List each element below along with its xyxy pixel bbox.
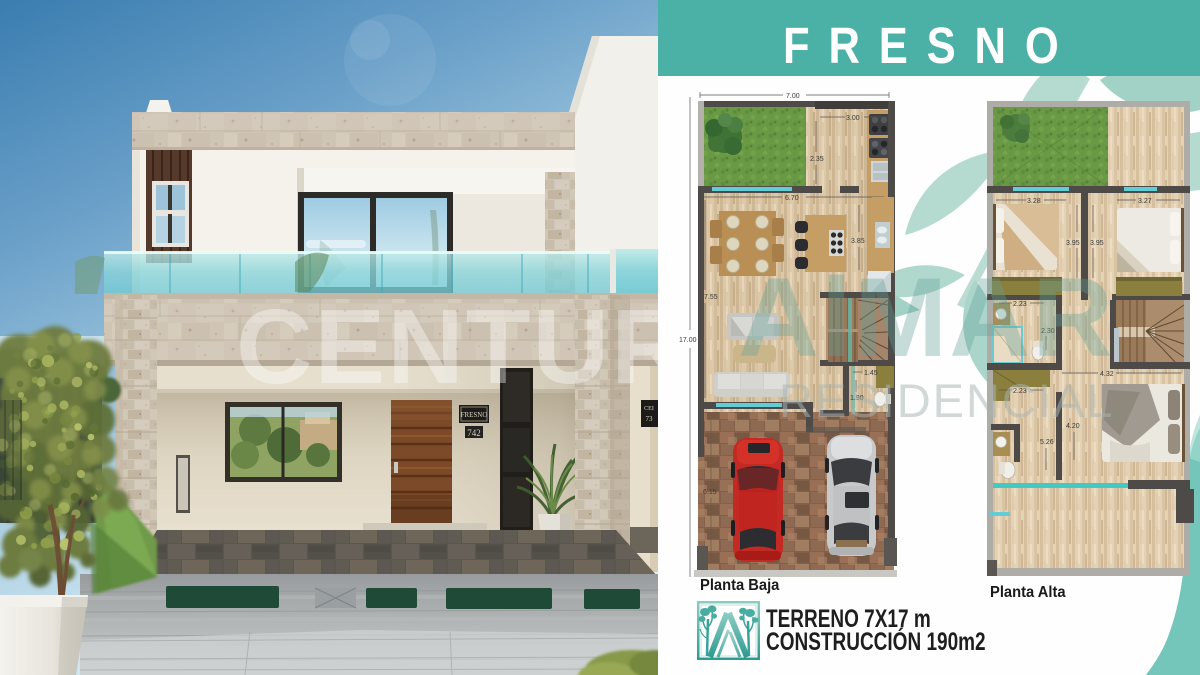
svg-text:3.95: 3.95 [1090,240,1104,247]
svg-text:73: 73 [646,415,654,423]
svg-text:6.70: 6.70 [785,195,799,202]
svg-text:5.26: 5.26 [1040,439,1054,446]
svg-text:3.28: 3.28 [1027,198,1041,205]
svg-text:2.35: 2.35 [810,156,824,163]
svg-text:3.27: 3.27 [1138,198,1152,205]
svg-text:742: 742 [467,428,481,438]
svg-text:17.00: 17.00 [679,337,697,344]
svg-text:3.00: 3.00 [846,115,860,122]
svg-text:3.95: 3.95 [1066,240,1080,247]
svg-text:7.55: 7.55 [704,294,718,301]
svg-text:CENTUR: CENTUR [236,288,658,406]
svg-text:6.15: 6.15 [703,489,717,496]
svg-text:7.00: 7.00 [786,93,800,100]
svg-text:FRESNO: FRESNO [461,411,488,419]
svg-text:3.85: 3.85 [851,238,865,245]
svg-text:CEI: CEI [644,406,654,412]
